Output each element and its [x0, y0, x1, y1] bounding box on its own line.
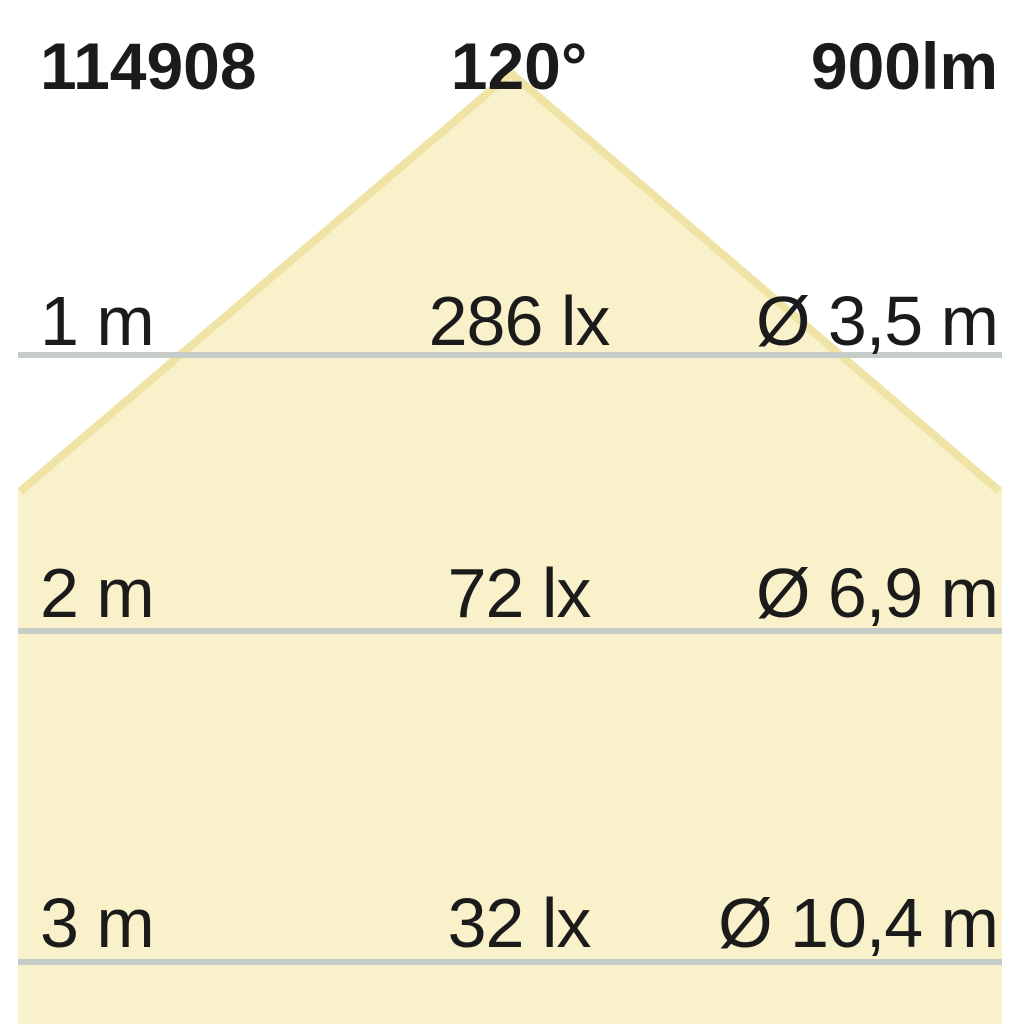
header-row: 114908 120° 900lm	[40, 33, 998, 99]
beam-diameter-value: Ø 3,5 m	[756, 286, 998, 356]
beam-diameter-value: Ø 10,4 m	[718, 888, 998, 958]
beam-angle: 120°	[451, 33, 588, 99]
data-row-2m: 2 m 72 lx Ø 6,9 m	[40, 558, 998, 628]
distance-label: 2 m	[40, 558, 154, 628]
illuminance-value: 32 lx	[448, 888, 591, 958]
distance-label: 3 m	[40, 888, 154, 958]
data-row-3m: 3 m 32 lx Ø 10,4 m	[40, 888, 998, 958]
beam-diameter-value: Ø 6,9 m	[756, 558, 998, 628]
illuminance-value: 72 lx	[448, 558, 591, 628]
data-row-1m: 1 m 286 lx Ø 3,5 m	[40, 286, 998, 356]
beam-cone-graphic	[0, 0, 1024, 1024]
distance-label: 1 m	[40, 286, 154, 356]
luminous-flux: 900lm	[811, 33, 998, 99]
article-number: 114908	[40, 33, 257, 99]
beam-cone-fill	[18, 68, 1002, 1024]
light-beam-diagram: 114908 120° 900lm 1 m 286 lx Ø 3,5 m 2 m…	[0, 0, 1024, 1024]
illuminance-value: 286 lx	[429, 286, 610, 356]
